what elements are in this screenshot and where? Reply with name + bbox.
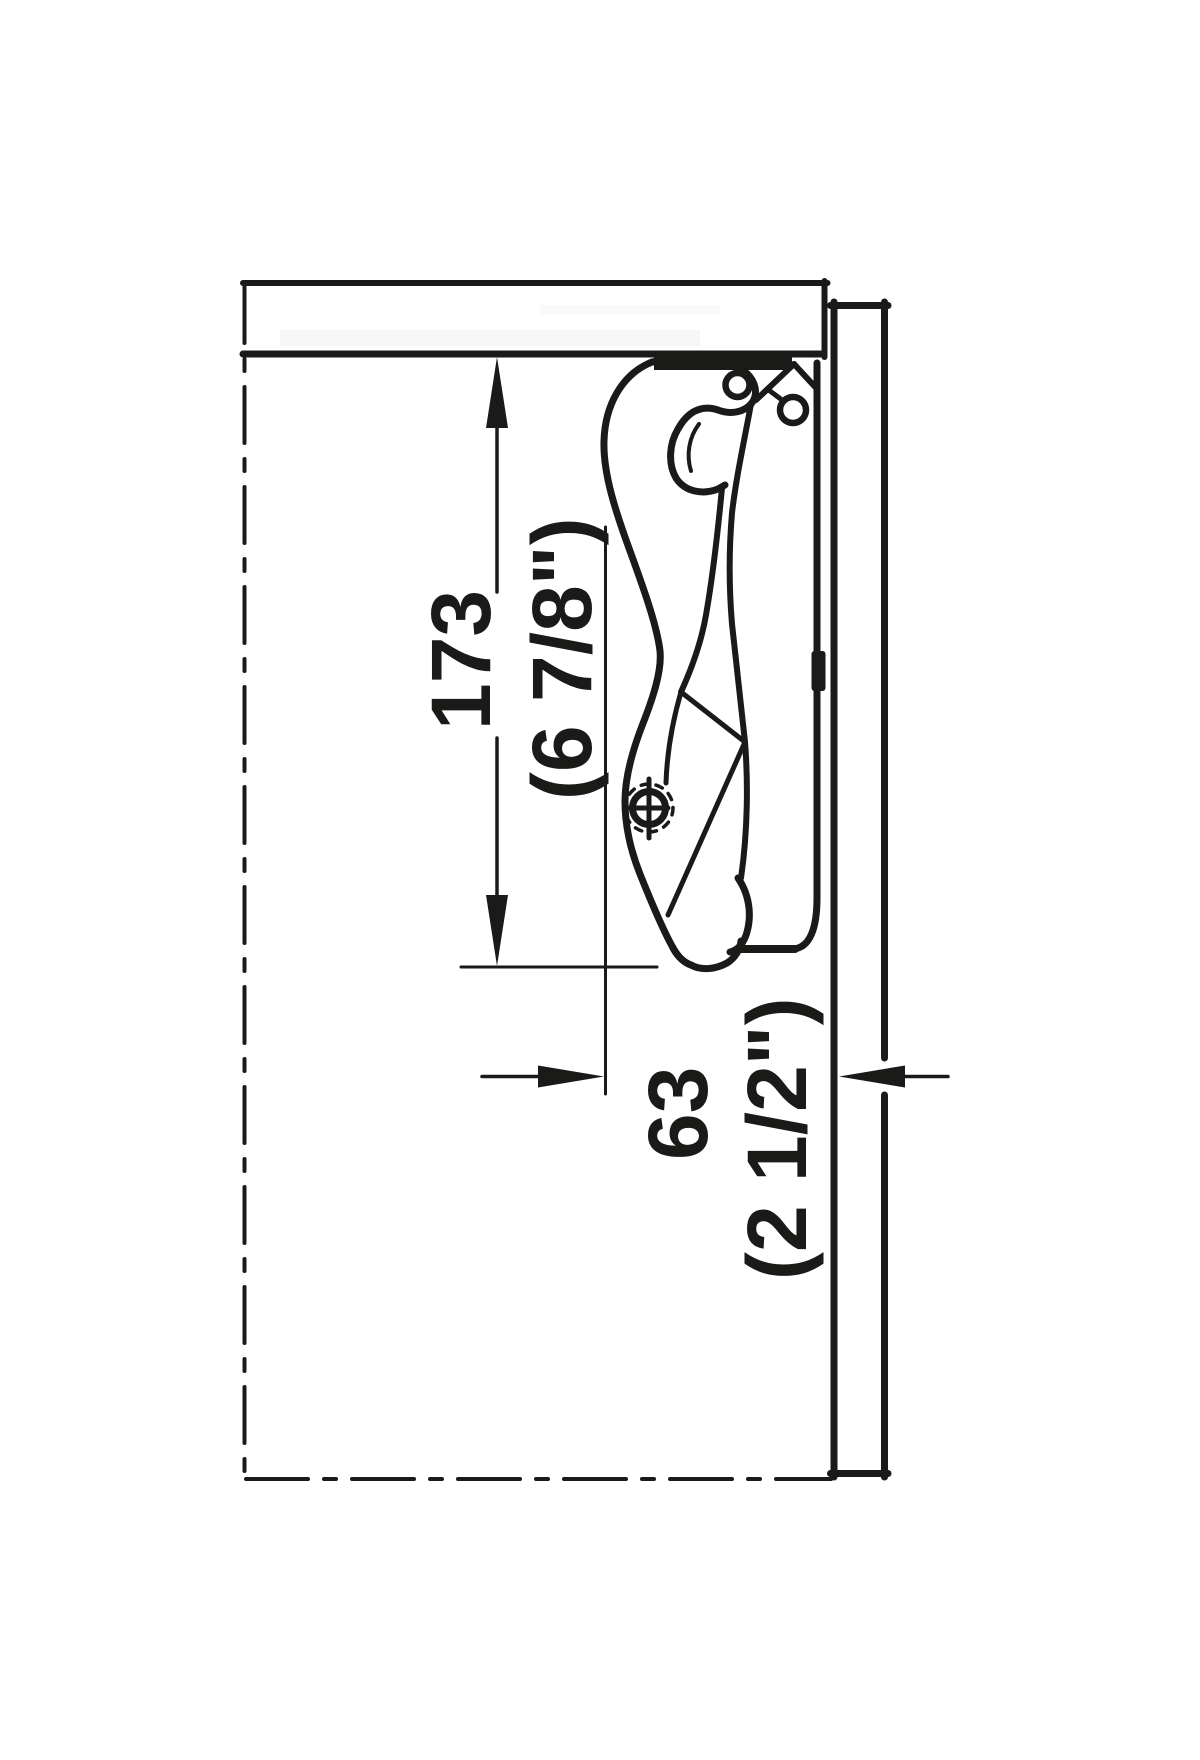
linkage-line-3 — [668, 742, 745, 915]
arrow-down-icon — [486, 895, 508, 966]
pivot-ring-icon — [780, 397, 806, 423]
scan-artifact — [540, 305, 720, 314]
pivot-ring-icon — [726, 373, 750, 397]
dim-height-value-inch: (6 7/8") — [515, 517, 609, 800]
linkage-line-4 — [741, 742, 747, 878]
arm-middle-edge — [681, 488, 722, 692]
arm-inner-edge — [730, 404, 751, 624]
flap-door-panel — [831, 302, 889, 1477]
arm-outer-edge — [604, 362, 691, 965]
band-inner-edge — [666, 692, 681, 783]
linkage-line-2 — [681, 692, 745, 742]
lift-mechanism — [604, 357, 826, 969]
flap-fitting-cross-section: 173 (6 7/8") 63 (2 1/2") — [0, 0, 1200, 1760]
arm-foot-lobe — [730, 878, 749, 952]
cabinet-top-panel — [243, 281, 828, 357]
dim-height-value-mm: 173 — [414, 590, 508, 730]
scan-artifact — [280, 330, 700, 346]
linkage-line-1 — [732, 624, 745, 742]
dimension-height: 173 (6 7/8") — [414, 357, 657, 967]
arrow-right-icon — [538, 1066, 604, 1088]
arrow-left-icon — [839, 1066, 905, 1088]
technical-drawing: 173 (6 7/8") 63 (2 1/2") — [0, 0, 1200, 1760]
rail-latch-block — [812, 651, 826, 691]
dim-depth-value-inch: (2 1/2") — [730, 997, 824, 1280]
hook-crescent-line — [689, 424, 699, 471]
dim-depth-value-mm: 63 — [631, 1067, 725, 1160]
adjustment-screw-icon — [625, 779, 673, 838]
arrow-up-icon — [486, 357, 508, 428]
